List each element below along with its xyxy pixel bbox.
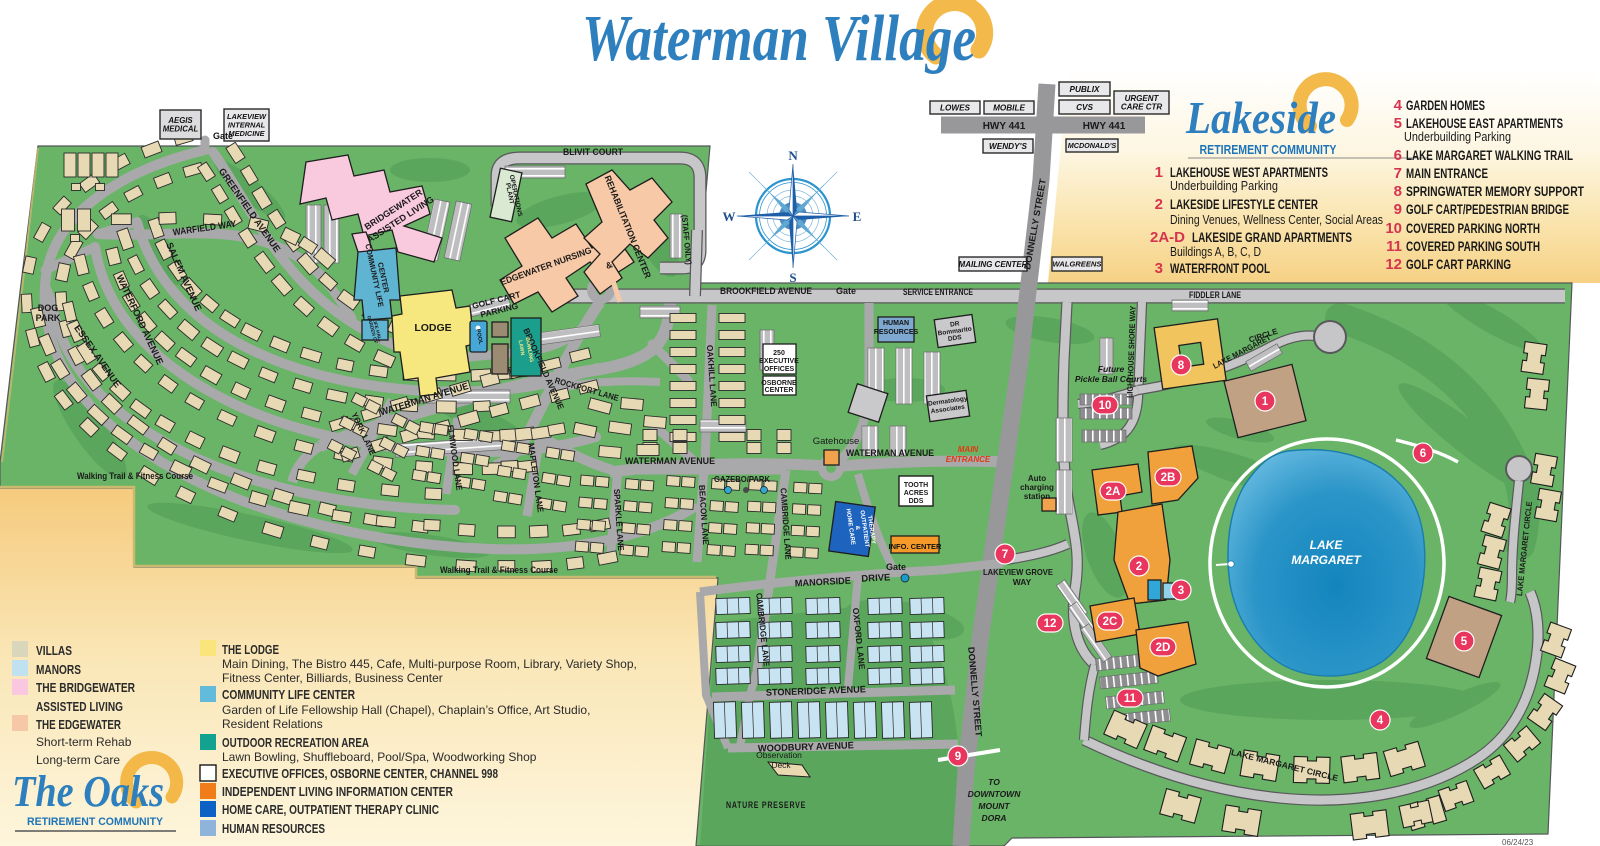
svg-text:Main Dining, The Bistro 445, C: Main Dining, The Bistro 445, Cafe, Multi…: [222, 657, 637, 671]
svg-text:Gatehouse: Gatehouse: [813, 436, 859, 447]
svg-text:5: 5: [1461, 636, 1468, 648]
svg-text:WALGREENS: WALGREENS: [1053, 260, 1102, 269]
svg-text:RETIREMENT COMMUNITY: RETIREMENT COMMUNITY: [1200, 143, 1338, 157]
svg-text:11: 11: [1386, 238, 1402, 255]
svg-text:Lakeside: Lakeside: [1185, 92, 1336, 143]
svg-text:COVERED PARKING SOUTH: COVERED PARKING SOUTH: [1406, 239, 1540, 255]
svg-text:EXECUTIVE: EXECUTIVE: [759, 358, 799, 365]
svg-text:THE BRIDGEWATER: THE BRIDGEWATER: [36, 680, 135, 695]
svg-text:Gate: Gate: [213, 131, 233, 141]
svg-text:INFO. CENTER: INFO. CENTER: [889, 542, 943, 551]
svg-text:9: 9: [1394, 201, 1402, 218]
svg-text:ASSISTED LIVING: ASSISTED LIVING: [36, 699, 123, 714]
svg-text:WAY: WAY: [1013, 577, 1032, 587]
svg-text:1: 1: [1155, 164, 1163, 181]
svg-text:EXECUTIVE OFFICES, OSBORNE CEN: EXECUTIVE OFFICES, OSBORNE CENTER, CHANN…: [222, 766, 498, 781]
svg-text:DOG: DOG: [38, 303, 59, 313]
svg-text:GAZEBO/PARK: GAZEBO/PARK: [714, 474, 771, 484]
svg-text:LODGE: LODGE: [414, 322, 451, 334]
svg-text:The Oaks: The Oaks: [12, 767, 164, 816]
svg-text:Auto: Auto: [1028, 474, 1046, 483]
svg-text:4: 4: [1394, 97, 1403, 114]
svg-text:1: 1: [1262, 396, 1269, 408]
svg-text:MCDONALD'S: MCDONALD'S: [1068, 141, 1117, 150]
svg-text:2: 2: [1136, 561, 1142, 573]
svg-text:MEDICAL: MEDICAL: [163, 125, 199, 134]
svg-text:2D: 2D: [1156, 642, 1171, 654]
svg-text:5: 5: [1394, 115, 1402, 132]
svg-text:7: 7: [1394, 165, 1402, 182]
svg-text:12: 12: [1385, 256, 1402, 273]
svg-text:MEDICINE: MEDICINE: [228, 129, 265, 138]
svg-text:Gate: Gate: [886, 562, 906, 572]
svg-text:HWY 441: HWY 441: [1083, 121, 1126, 132]
svg-text:OUTDOOR RECREATION AREA: OUTDOOR RECREATION AREA: [222, 735, 369, 750]
svg-text:3: 3: [1155, 260, 1163, 277]
svg-text:250: 250: [773, 350, 785, 357]
svg-text:E: E: [853, 209, 862, 224]
svg-text:THE LODGE: THE LODGE: [222, 642, 279, 657]
svg-text:LAKESIDE GRAND APARTMENTS: LAKESIDE GRAND APARTMENTS: [1192, 230, 1352, 246]
svg-text:BLIVIT COURT: BLIVIT COURT: [563, 147, 623, 157]
svg-text:CENTER: CENTER: [765, 387, 794, 394]
svg-text:TOOTH: TOOTH: [904, 482, 928, 489]
svg-text:Resident Relations: Resident Relations: [222, 717, 323, 731]
svg-text:6: 6: [1420, 448, 1426, 460]
svg-text:N: N: [788, 148, 798, 163]
svg-text:12: 12: [1044, 618, 1057, 630]
svg-text:ACRES: ACRES: [904, 490, 929, 497]
svg-text:OFFICES: OFFICES: [764, 366, 795, 373]
svg-text:2B: 2B: [1161, 472, 1176, 484]
svg-text:CARE CTR: CARE CTR: [1121, 103, 1163, 112]
svg-text:RETIREMENT COMMUNITY: RETIREMENT COMMUNITY: [27, 816, 164, 828]
svg-text:LAKE MARGARET WALKING TRAIL: LAKE MARGARET WALKING TRAIL: [1406, 148, 1573, 164]
svg-text:10: 10: [1385, 220, 1402, 237]
svg-text:Buildings A, B, C, D: Buildings A, B, C, D: [1170, 245, 1261, 259]
svg-text:COVERED PARKING NORTH: COVERED PARKING NORTH: [1406, 221, 1540, 237]
svg-text:COMMUNITY LIFE CENTER: COMMUNITY LIFE CENTER: [222, 687, 355, 702]
svg-text:Garden of Life Fellowship Hall: Garden of Life Fellowship Hall (Chapel),…: [222, 703, 590, 717]
svg-text:MANORS: MANORS: [36, 662, 81, 677]
svg-text:Long-term Care: Long-term Care: [36, 753, 120, 767]
svg-text:INDEPENDENT LIVING INFORMATION: INDEPENDENT LIVING INFORMATION CENTER: [222, 784, 453, 799]
svg-text:MAIN: MAIN: [958, 445, 979, 454]
svg-text:GOLF CART PARKING: GOLF CART PARKING: [1406, 257, 1511, 273]
svg-text:WENDY'S: WENDY'S: [989, 142, 1027, 151]
svg-text:WATERMAN AVENUE: WATERMAN AVENUE: [846, 448, 934, 459]
svg-text:URGENT: URGENT: [1125, 94, 1160, 103]
svg-text:2A: 2A: [1106, 486, 1121, 498]
svg-text:THE EDGEWATER: THE EDGEWATER: [36, 717, 121, 732]
svg-text:7: 7: [1002, 549, 1008, 561]
svg-text:Short-term Rehab: Short-term Rehab: [36, 735, 132, 749]
svg-text:Waterman Village: Waterman Village: [582, 2, 976, 75]
svg-text:Gate: Gate: [836, 286, 856, 296]
svg-text:2A-D: 2A-D: [1150, 229, 1185, 246]
svg-text:8: 8: [1394, 183, 1402, 200]
svg-text:MARGARET: MARGARET: [1291, 553, 1362, 567]
svg-text:9: 9: [955, 751, 961, 763]
svg-text:MAIN ENTRANCE: MAIN ENTRANCE: [1406, 166, 1488, 182]
svg-text:station: station: [1024, 492, 1050, 501]
svg-text:LAKEVIEW GROVE: LAKEVIEW GROVE: [983, 567, 1053, 577]
svg-text:FIDDLER LANE: FIDDLER LANE: [1189, 290, 1241, 301]
svg-text:RESOURCES: RESOURCES: [874, 329, 919, 336]
svg-text:DDS: DDS: [909, 498, 924, 505]
svg-text:3: 3: [1178, 585, 1184, 597]
svg-text:10: 10: [1099, 400, 1112, 412]
svg-text:HUMAN: HUMAN: [883, 320, 909, 327]
svg-text:11: 11: [1124, 693, 1137, 705]
svg-text:Fitness Center, Billiards, Bus: Fitness Center, Billiards, Business Cent…: [222, 671, 443, 685]
svg-text:Underbuilding Parking: Underbuilding Parking: [1170, 179, 1278, 193]
svg-text:Walking Trail & Fitness Course: Walking Trail & Fitness Course: [440, 565, 558, 575]
svg-text:Walking Trail & Fitness Course: Walking Trail & Fitness Course: [77, 471, 193, 481]
svg-text:2: 2: [1155, 196, 1163, 213]
svg-text:HOME CARE, OUTPATIENT THERAPY: HOME CARE, OUTPATIENT THERAPY CLINIC: [222, 802, 439, 817]
svg-text:Pickle Ball Courts: Pickle Ball Courts: [1075, 374, 1148, 384]
svg-text:Future: Future: [1098, 364, 1125, 374]
svg-text:SERVICE ENTRANCE: SERVICE ENTRANCE: [903, 287, 973, 298]
svg-text:Dining Venues, Wellness Center: Dining Venues, Wellness Center, Social A…: [1170, 213, 1383, 227]
svg-text:HUMAN RESOURCES: HUMAN RESOURCES: [222, 821, 325, 836]
svg-text:DORA: DORA: [981, 813, 1006, 823]
svg-text:SPRINGWATER MEMORY SUPPORT: SPRINGWATER MEMORY SUPPORT: [1406, 184, 1584, 200]
svg-text:4: 4: [1377, 715, 1384, 727]
svg-text:DRIVE: DRIVE: [861, 572, 891, 585]
svg-text:Lawn Bowling, Shuffleboard, Po: Lawn Bowling, Shuffleboard, Pool/Spa, Wo…: [222, 750, 537, 764]
svg-text:Underbuilding Parking: Underbuilding Parking: [1404, 130, 1511, 144]
svg-text:NATURE PRESERVE: NATURE PRESERVE: [726, 800, 806, 811]
svg-text:Observation: Observation: [756, 750, 802, 760]
svg-text:TO: TO: [988, 777, 1000, 787]
svg-text:PARK: PARK: [36, 313, 61, 323]
svg-text:8: 8: [1178, 360, 1185, 372]
svg-text:PUBLIX: PUBLIX: [1069, 85, 1100, 94]
svg-text:W: W: [723, 209, 736, 224]
svg-text:GARDEN HOMES: GARDEN HOMES: [1406, 98, 1485, 114]
svg-text:LOWES: LOWES: [940, 103, 971, 112]
svg-text:HWY 441: HWY 441: [983, 121, 1026, 132]
svg-text:MOUNT: MOUNT: [978, 801, 1010, 811]
svg-text:06/24/23: 06/24/23: [1502, 838, 1534, 846]
svg-text:ENTRANCE: ENTRANCE: [946, 455, 991, 464]
svg-text:charging: charging: [1020, 483, 1054, 492]
svg-text:DOWNTOWN: DOWNTOWN: [968, 789, 1022, 799]
svg-text:MOBILE: MOBILE: [993, 103, 1025, 112]
svg-text:MAILING CENTER: MAILING CENTER: [959, 260, 1028, 269]
svg-text:WATERFRONT POOL: WATERFRONT POOL: [1170, 261, 1270, 277]
svg-text:6: 6: [1394, 147, 1402, 164]
svg-text:LAKE: LAKE: [1310, 538, 1344, 552]
svg-text:S: S: [789, 270, 796, 285]
svg-text:WATERMAN AVENUE: WATERMAN AVENUE: [625, 456, 715, 467]
svg-text:VILLAS: VILLAS: [36, 643, 72, 658]
svg-text:GOLF CART/PEDESTRIAN BRIDGE: GOLF CART/PEDESTRIAN BRIDGE: [1406, 202, 1569, 218]
svg-text:CVS: CVS: [1076, 103, 1093, 112]
svg-text:LAKESIDE LIFESTYLE CENTER: LAKESIDE LIFESTYLE CENTER: [1170, 197, 1318, 213]
svg-text:2C: 2C: [1103, 616, 1118, 628]
svg-text:BROOKFIELD AVENUE: BROOKFIELD AVENUE: [720, 286, 812, 297]
svg-text:Deck: Deck: [771, 760, 791, 770]
svg-text:OSBORNE: OSBORNE: [761, 380, 797, 387]
